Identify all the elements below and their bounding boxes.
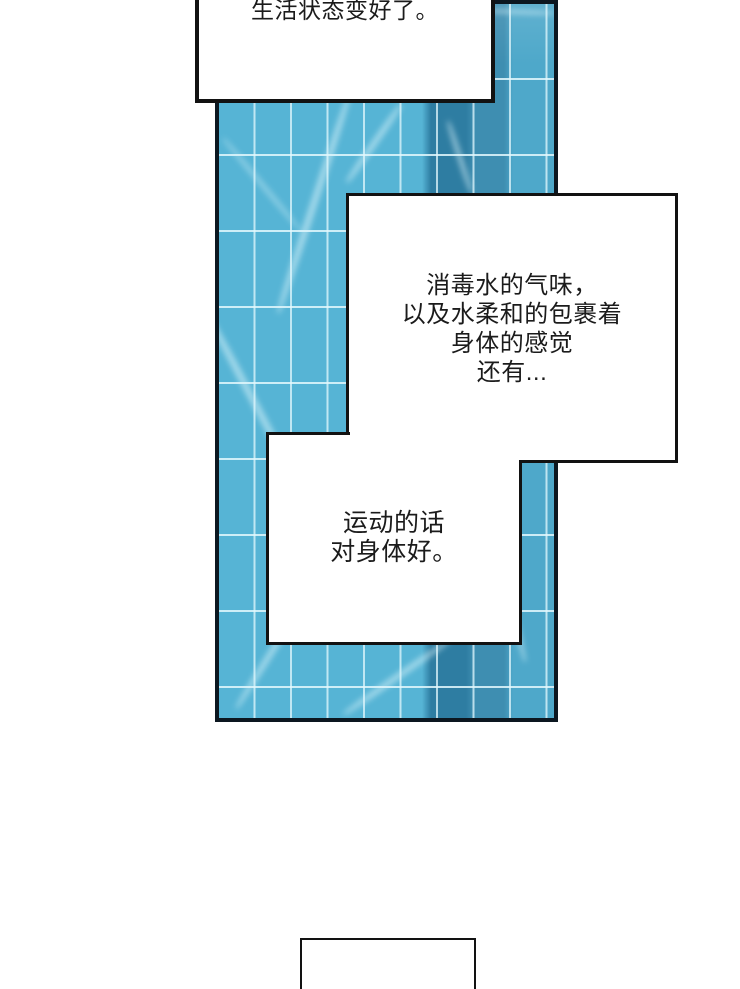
narration-line: 还有... — [349, 358, 675, 387]
narration-box-top: 生活状态变好了。 — [195, 0, 495, 103]
narration-box-scent: 消毒水的气味， 以及水柔和的包裹着 身体的感觉 还有... — [346, 193, 678, 463]
water-caustic-highlight — [446, 120, 474, 193]
narration-text: 消毒水的气味， 以及水柔和的包裹着 身体的感觉 还有... — [349, 271, 675, 387]
narration-box-bottom — [300, 938, 476, 989]
water-caustic-highlight — [221, 136, 302, 231]
water-caustic-highlight — [485, 9, 555, 15]
box-merge-patch — [350, 432, 522, 435]
water-caustic-highlight — [342, 637, 452, 716]
water-caustic-highlight — [275, 89, 354, 315]
narration-box-exercise: 运动的话 对身体好。 — [266, 432, 522, 645]
narration-line: 身体的感觉 — [349, 329, 675, 358]
narration-line: 生活状态变好了。 — [199, 0, 491, 24]
narration-line: 消毒水的气味， — [349, 271, 675, 300]
box-merge-patch — [519, 435, 522, 460]
narration-text: 运动的话 对身体好。 — [269, 509, 519, 567]
narration-line: 对身体好。 — [269, 538, 519, 567]
narration-line: 以及水柔和的包裹着 — [349, 300, 675, 329]
narration-line: 运动的话 — [269, 509, 519, 538]
comic-page: 消毒水的气味， 以及水柔和的包裹着 身体的感觉 还有... 运动的话 对身体好。… — [0, 0, 740, 989]
water-caustic-highlight — [344, 103, 403, 184]
narration-text: 生活状态变好了。 — [199, 0, 491, 24]
